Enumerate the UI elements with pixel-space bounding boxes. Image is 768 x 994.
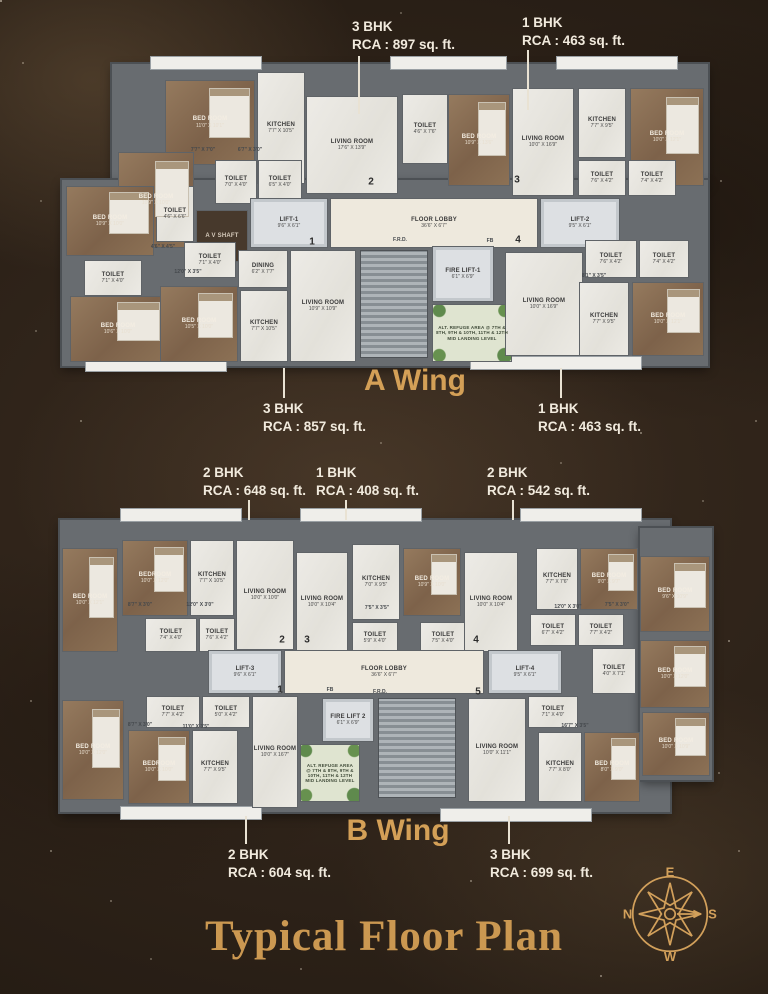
room-label: TOILET	[603, 665, 625, 672]
room-bed-room: BED ROOM10'0" X 12'0"	[640, 640, 710, 708]
room-dimension: 10'0" X 10'0"	[145, 767, 173, 773]
unit-type-label: 1 BHK	[316, 464, 419, 482]
room-dimension: 10'6" X 10'0"	[104, 329, 132, 335]
room-dimension: 6'5" X 4'0"	[269, 182, 292, 188]
room-label: BED ROOM	[659, 738, 694, 745]
room-dimension: 10'9" X 10'0"	[142, 200, 170, 206]
unit-callout: 1 BHKRCA : 463 sq. ft.	[538, 400, 641, 436]
room-label: FLOOR LOBBY	[361, 666, 407, 673]
unit-type-label: 2 BHK	[487, 464, 590, 482]
room-fire-lift-2: FIRE LIFT 26'1" X 6'9"	[322, 698, 374, 742]
room-living-room: LIVING ROOM10'0" X 16'7"	[252, 696, 298, 808]
unit-number-badge: 2	[368, 177, 374, 188]
room-label: LIVING ROOM	[476, 744, 519, 751]
room-label: LIVING ROOM	[331, 139, 374, 146]
room-label: ALT. REFUGE AREA @ 7TH & 8TH, 9TH & 10TH…	[433, 325, 511, 341]
callout-leader-line	[512, 500, 514, 520]
unit-type-label: 3 BHK	[352, 18, 455, 36]
unit-type-label: 1 BHK	[538, 400, 641, 418]
room-dimension: 7'7" X 10'5"	[251, 326, 276, 332]
room-lift-3: LIFT-39'6" X 6'1"	[208, 650, 282, 694]
room-dimension: 10'0" X 11'1"	[483, 750, 511, 756]
room-toilet: TOILET6'7" X 4'2"	[530, 614, 576, 646]
room-dimension: 10'9" X 10'0"	[418, 582, 446, 588]
floor-plan-title: Typical Floor Plan	[205, 912, 563, 961]
room-dimension: 10'0" X 12'0"	[141, 578, 169, 584]
room-dimension: 7'1" X 4'0"	[102, 278, 125, 284]
room-toilet: TOILET7'7" X 4'2"	[578, 614, 624, 646]
dimension-label: FB	[327, 687, 334, 693]
room-dimension: 7'4" X 4'2"	[653, 259, 676, 265]
room-label: LIFT-1	[280, 217, 299, 224]
room-label: BED ROOM	[462, 134, 497, 141]
unit-number-badge: 2	[279, 635, 285, 646]
room-label: TOILET	[164, 208, 186, 215]
room-label: TOILET	[542, 624, 564, 631]
room-dimension: 6'1" X 6'9"	[337, 720, 360, 726]
room-dimension: 4'6" X 6'6"	[164, 214, 187, 220]
unit-rca-label: RCA : 463 sq. ft.	[522, 32, 625, 50]
room-label: TOILET	[199, 254, 221, 261]
room-dimension: 10'0" X 10'4"	[308, 602, 336, 608]
dimension-label: 7'7" X 7'0"	[191, 147, 215, 153]
unit-number-badge: 1	[309, 237, 315, 248]
room-dimension: 7'7" X 9'5"	[591, 123, 614, 129]
room-label: BED ROOM	[93, 215, 128, 222]
room-dimension: 8'0" X 9'0"	[601, 767, 624, 773]
compass-letter-right: S	[708, 906, 717, 921]
room-dimension: 7'6" X 4'2"	[600, 259, 623, 265]
room-label: TOILET	[591, 172, 613, 179]
room-dimension: 10'0" X 12'1"	[654, 319, 682, 325]
compass-rose-icon: E S W N	[618, 862, 722, 966]
room-label: LIVING ROOM	[302, 300, 345, 307]
room-kitchen: KITCHEN7'7" X 8'0"	[538, 732, 582, 802]
floor-plan-poster: BED ROOM11'0" X 10'1"KITCHEN7'7" X 10'5"…	[0, 0, 768, 994]
room-label: TOILET	[225, 176, 247, 183]
dimension-label: 16'7" X 3'5"	[561, 723, 588, 729]
wing-label: A Wing	[364, 364, 466, 398]
room-label: BED ROOM	[592, 573, 627, 580]
unit-rca-label: RCA : 648 sq. ft.	[203, 482, 306, 500]
dimension-label: F.R.D.	[393, 237, 407, 243]
unit-callout: 3 BHKRCA : 699 sq. ft.	[490, 846, 593, 882]
room-label: KITCHEN	[250, 320, 278, 327]
room-label: KITCHEN	[198, 572, 226, 579]
room-dimension: 7'7" X 10'5"	[268, 128, 293, 134]
wing-label: B Wing	[346, 814, 449, 848]
room-label: KITCHEN	[201, 761, 229, 768]
room-dimension: 10'0" X 12'0"	[79, 750, 107, 756]
unit-type-label: 3 BHK	[490, 846, 593, 864]
room-dimension: 7'7" X 8'0"	[549, 767, 572, 773]
room-label: ALT. REFUGE AREA @ 7TH & 8TH, 9TH & 10TH…	[301, 763, 359, 784]
room-label: KITCHEN	[588, 117, 616, 124]
room-label: LIFT-4	[516, 666, 535, 673]
room-dimension: 9'5" X 6'1"	[514, 672, 537, 678]
room-dimension: 5'0" X 4'2"	[215, 712, 238, 718]
room-dimension: 7'6" X 4'2"	[591, 178, 614, 184]
unit-number-badge: 1	[277, 685, 283, 696]
room-dimension: 7'0" X 4'0"	[225, 182, 248, 188]
room-dimension: 6'1" X 6'9"	[452, 274, 475, 280]
unit-number-badge: 3	[304, 635, 310, 646]
room-label: TOILET	[432, 632, 454, 639]
room-dimension: 10'0" X 10'0"	[251, 595, 279, 601]
dimension-label: 8'7" X 3'0"	[128, 602, 152, 608]
room-bed-room: BED ROOM10'0" X 10'9"	[642, 712, 710, 776]
room-label: BED ROOM	[658, 668, 693, 675]
unit-callout: 3 BHKRCA : 857 sq. ft.	[263, 400, 366, 436]
room-label: BED ROOM	[101, 323, 136, 330]
room-label: KITCHEN	[267, 122, 295, 129]
room-dimension: 9'6" X 6'1"	[234, 672, 257, 678]
room-dimension: 36'6" X 6'7"	[371, 672, 396, 678]
dimension-label: 7'5" X 3'0"	[605, 602, 629, 608]
room-kitchen: KITCHEN7'7" X 9'5"	[192, 730, 238, 804]
room-dimension: 9'6" X 6'1"	[278, 223, 301, 229]
room-label: BED ROOM	[73, 594, 108, 601]
room-toilet: TOILET7'6" X 4'2"	[199, 618, 235, 652]
dimension-label: 8'1" X 3'5"	[582, 273, 606, 279]
balcony-strip	[440, 808, 592, 822]
room-dimension: 10'9" X 10'9"	[309, 306, 337, 312]
callout-leader-line	[508, 816, 510, 844]
room-label: BED ROOM	[658, 588, 693, 595]
unit-callout: 2 BHKRCA : 648 sq. ft.	[203, 464, 306, 500]
callout-leader-line	[527, 50, 529, 110]
room-dimension: 7'4" X 4'0"	[160, 635, 183, 641]
room-dimension: 10'9" X 13'6"	[465, 140, 493, 146]
room-kitchen: KITCHEN7'7" X 7'6"	[536, 548, 578, 610]
unit-type-label: 1 BHK	[522, 14, 625, 32]
dimension-label: 8'7" X 3'0"	[128, 722, 152, 728]
room-living-room: LIVING ROOM10'0" X 10'4"	[464, 552, 518, 652]
room-dimension: 5'9" X 4'0"	[364, 638, 387, 644]
room-label: LIFT-2	[571, 217, 590, 224]
room-bed-room: BED ROOM10'0" X 12'0"	[62, 700, 124, 800]
room-bedroom: BEDROOM10'0" X 10'0"	[128, 730, 190, 804]
room-label: BED ROOM	[139, 194, 174, 201]
room-label: TOILET	[269, 176, 291, 183]
room-label: BEDROOM	[139, 572, 172, 579]
room-label: LIVING ROOM	[244, 589, 287, 596]
room-dimension: 36'6" X 6'7"	[421, 223, 446, 229]
room-label: TOILET	[414, 123, 436, 130]
callout-leader-line	[248, 500, 250, 520]
unit-rca-label: RCA : 897 sq. ft.	[352, 36, 455, 54]
room-label: BED ROOM	[595, 761, 630, 768]
room-dimension: 17'6" X 13'9"	[338, 145, 366, 151]
room-label: DINING	[252, 263, 274, 270]
room-dimension: 9'0" X 9'7"	[598, 579, 621, 585]
room-dimension: 7'7" X 9'5"	[204, 767, 227, 773]
room-dimension: 10'0" X 16'9"	[529, 142, 557, 148]
room-label: LIVING ROOM	[254, 746, 297, 753]
room-dimension: 10'0" X 10'9"	[662, 744, 690, 750]
room-label: FIRE LIFT-1	[445, 268, 480, 275]
unit-number-badge: 4	[515, 235, 521, 246]
compass-letter-top: E	[666, 865, 675, 880]
room-label: LIVING ROOM	[522, 136, 565, 143]
unit-rca-label: RCA : 604 sq. ft.	[228, 864, 331, 882]
unit-type-label: 2 BHK	[203, 464, 306, 482]
unit-callout: 2 BHKRCA : 604 sq. ft.	[228, 846, 331, 882]
room-dimension: 10'0" X 12'1"	[653, 137, 681, 143]
room-dimension: 10'0" X 12'0"	[661, 674, 689, 680]
room-label: BED ROOM	[415, 576, 450, 583]
dimension-label: 12'0" X 3'0"	[186, 602, 213, 608]
room-toilet: TOILET7'4" X 4'0"	[145, 618, 197, 652]
dimension-label: 6'7" X 3'0"	[238, 147, 262, 153]
room-label: TOILET	[653, 253, 675, 260]
room-dimension: 11'0" X 10'1"	[196, 123, 224, 129]
room-label: LIVING ROOM	[470, 596, 513, 603]
unit-rca-label: RCA : 857 sq. ft.	[263, 418, 366, 436]
callout-leader-line	[358, 56, 360, 114]
room-dimension: 7'7" X 10'5"	[199, 578, 224, 584]
dimension-label: 4'6" X 4'5"	[151, 244, 175, 250]
room-label: BEDROOM	[143, 761, 176, 768]
room-label: FLOOR LOBBY	[411, 217, 457, 224]
callout-leader-line	[245, 816, 247, 844]
room-label: BED ROOM	[182, 318, 217, 325]
dimension-label: F.R.D.	[373, 689, 387, 695]
room-dimension: 6'7" X 4'2"	[542, 630, 565, 636]
room-dimension: 10'0" X 16'7"	[261, 752, 289, 758]
unit-callout: 1 BHKRCA : 408 sq. ft.	[316, 464, 419, 500]
staircase	[378, 698, 456, 798]
room-bed-room: BED ROOM9'0" X 9'7"	[580, 548, 638, 610]
room-dimension: 10'0" X 16'9"	[530, 304, 558, 310]
unit-number-badge: 3	[514, 175, 520, 186]
room-label: TOILET	[162, 706, 184, 713]
room-floor-lobby: FLOOR LOBBY36'6" X 6'7"	[284, 650, 484, 694]
callout-leader-line	[283, 368, 285, 398]
unit-rca-label: RCA : 542 sq. ft.	[487, 482, 590, 500]
room-label: KITCHEN	[362, 576, 390, 583]
room-dimension: 9'5" X 6'1"	[569, 223, 592, 229]
room-label: A V SHAFT	[205, 233, 238, 240]
unit-rca-label: RCA : 408 sq. ft.	[316, 482, 419, 500]
room-dimension: 10'0" X 12'1"	[76, 600, 104, 606]
room-dimension: 6'2" X 7'7"	[252, 269, 275, 275]
room-label: LIVING ROOM	[301, 596, 344, 603]
room-label: BED ROOM	[650, 131, 685, 138]
room-dimension: 7'4" X 4'2"	[641, 178, 664, 184]
room-dimension: 10'0" X 10'4"	[477, 602, 505, 608]
room-dimension: 7'7" X 4'2"	[162, 712, 185, 718]
balcony-strip	[120, 508, 242, 522]
dimension-label: 11'0" X 3'5"	[183, 724, 210, 730]
unit-callout: 3 BHKRCA : 897 sq. ft.	[352, 18, 455, 54]
room-label: TOILET	[364, 632, 386, 639]
room-label: KITCHEN	[543, 573, 571, 580]
room-living-room: LIVING ROOM10'0" X 10'0"	[236, 540, 294, 650]
room-alt-refuge-area-7th-8th-9th-10th-11th-12th-mid-landing-level: ALT. REFUGE AREA @ 7TH & 8TH, 9TH & 10TH…	[300, 744, 360, 802]
room-dimension: 7'6" X 4'2"	[206, 635, 229, 641]
room-label: TOILET	[215, 706, 237, 713]
room-label: LIVING ROOM	[523, 298, 566, 305]
room-label: TOILET	[160, 629, 182, 636]
unit-number-badge: 4	[473, 635, 479, 646]
room-bed-room: BED ROOM9'6" X 10'9"	[640, 556, 710, 632]
room-label: FIRE LIFT 2	[330, 714, 365, 721]
dimension-label: 12'0" X 3'0"	[554, 604, 581, 610]
room-bed-room: BED ROOM10'9" X 10'0"	[403, 548, 461, 616]
room-bed-room: BED ROOM10'0" X 12'1"	[62, 548, 118, 652]
room-dimension: 7'1" X 4'0"	[199, 260, 222, 266]
room-dimension: 4'0" X 7'1"	[603, 671, 626, 677]
unit-type-label: 2 BHK	[228, 846, 331, 864]
room-dimension: 7'7" X 4'2"	[590, 630, 613, 636]
room-bed-room: BED ROOM8'0" X 9'0"	[584, 732, 640, 802]
compass-letter-bottom: W	[664, 949, 677, 964]
balcony-strip	[120, 806, 262, 820]
room-label: BED ROOM	[193, 116, 228, 123]
b-wing-plan: BED ROOM10'0" X 12'1"BEDROOM10'0" X 12'0…	[0, 0, 768, 994]
room-label: TOILET	[600, 253, 622, 260]
room-toilet: TOILET4'0" X 7'1"	[592, 648, 636, 694]
unit-number-badge: 5	[475, 687, 481, 698]
balcony-strip	[520, 508, 642, 522]
room-label: KITCHEN	[546, 761, 574, 768]
dimension-label: FB	[487, 238, 494, 244]
room-dimension: 7'1" X 4'0"	[542, 712, 565, 718]
unit-rca-label: RCA : 699 sq. ft.	[490, 864, 593, 882]
room-dimension: 7'5" X 4'0"	[432, 638, 455, 644]
room-label: LIFT-3	[236, 666, 255, 673]
dimension-label: 12'0" X 3'5"	[174, 269, 201, 275]
compass-letter-left: N	[623, 906, 632, 921]
room-label: TOILET	[102, 272, 124, 279]
room-label: TOILET	[590, 624, 612, 631]
room-label: BED ROOM	[651, 313, 686, 320]
room-dimension: 7'7" X 9'5"	[593, 319, 616, 325]
unit-callout: 1 BHKRCA : 463 sq. ft.	[522, 14, 625, 50]
unit-type-label: 3 BHK	[263, 400, 366, 418]
callout-leader-line	[345, 500, 347, 520]
room-label: TOILET	[206, 629, 228, 636]
room-dimension: 7'0" X 9'5"	[365, 582, 388, 588]
unit-callout: 2 BHKRCA : 542 sq. ft.	[487, 464, 590, 500]
room-dimension: 7'7" X 7'6"	[546, 579, 569, 585]
balcony-strip	[300, 508, 422, 522]
room-living-room: LIVING ROOM10'0" X 11'1"	[468, 698, 526, 802]
room-lift-4: LIFT-49'5" X 6'1"	[488, 650, 562, 694]
room-label: TOILET	[641, 172, 663, 179]
room-dimension: 10'9" X 10'0"	[96, 221, 124, 227]
unit-rca-label: RCA : 463 sq. ft.	[538, 418, 641, 436]
room-dimension: 10'5" X 10'0"	[185, 324, 213, 330]
room-label: TOILET	[542, 706, 564, 713]
room-label: KITCHEN	[590, 313, 618, 320]
room-dimension: 9'6" X 10'9"	[662, 594, 687, 600]
room-label: BED ROOM	[76, 744, 111, 751]
room-dimension: 4'6" X 7'6"	[414, 129, 437, 135]
dimension-label: 7'5" X 3'5"	[365, 605, 389, 611]
callout-leader-line	[560, 368, 562, 398]
